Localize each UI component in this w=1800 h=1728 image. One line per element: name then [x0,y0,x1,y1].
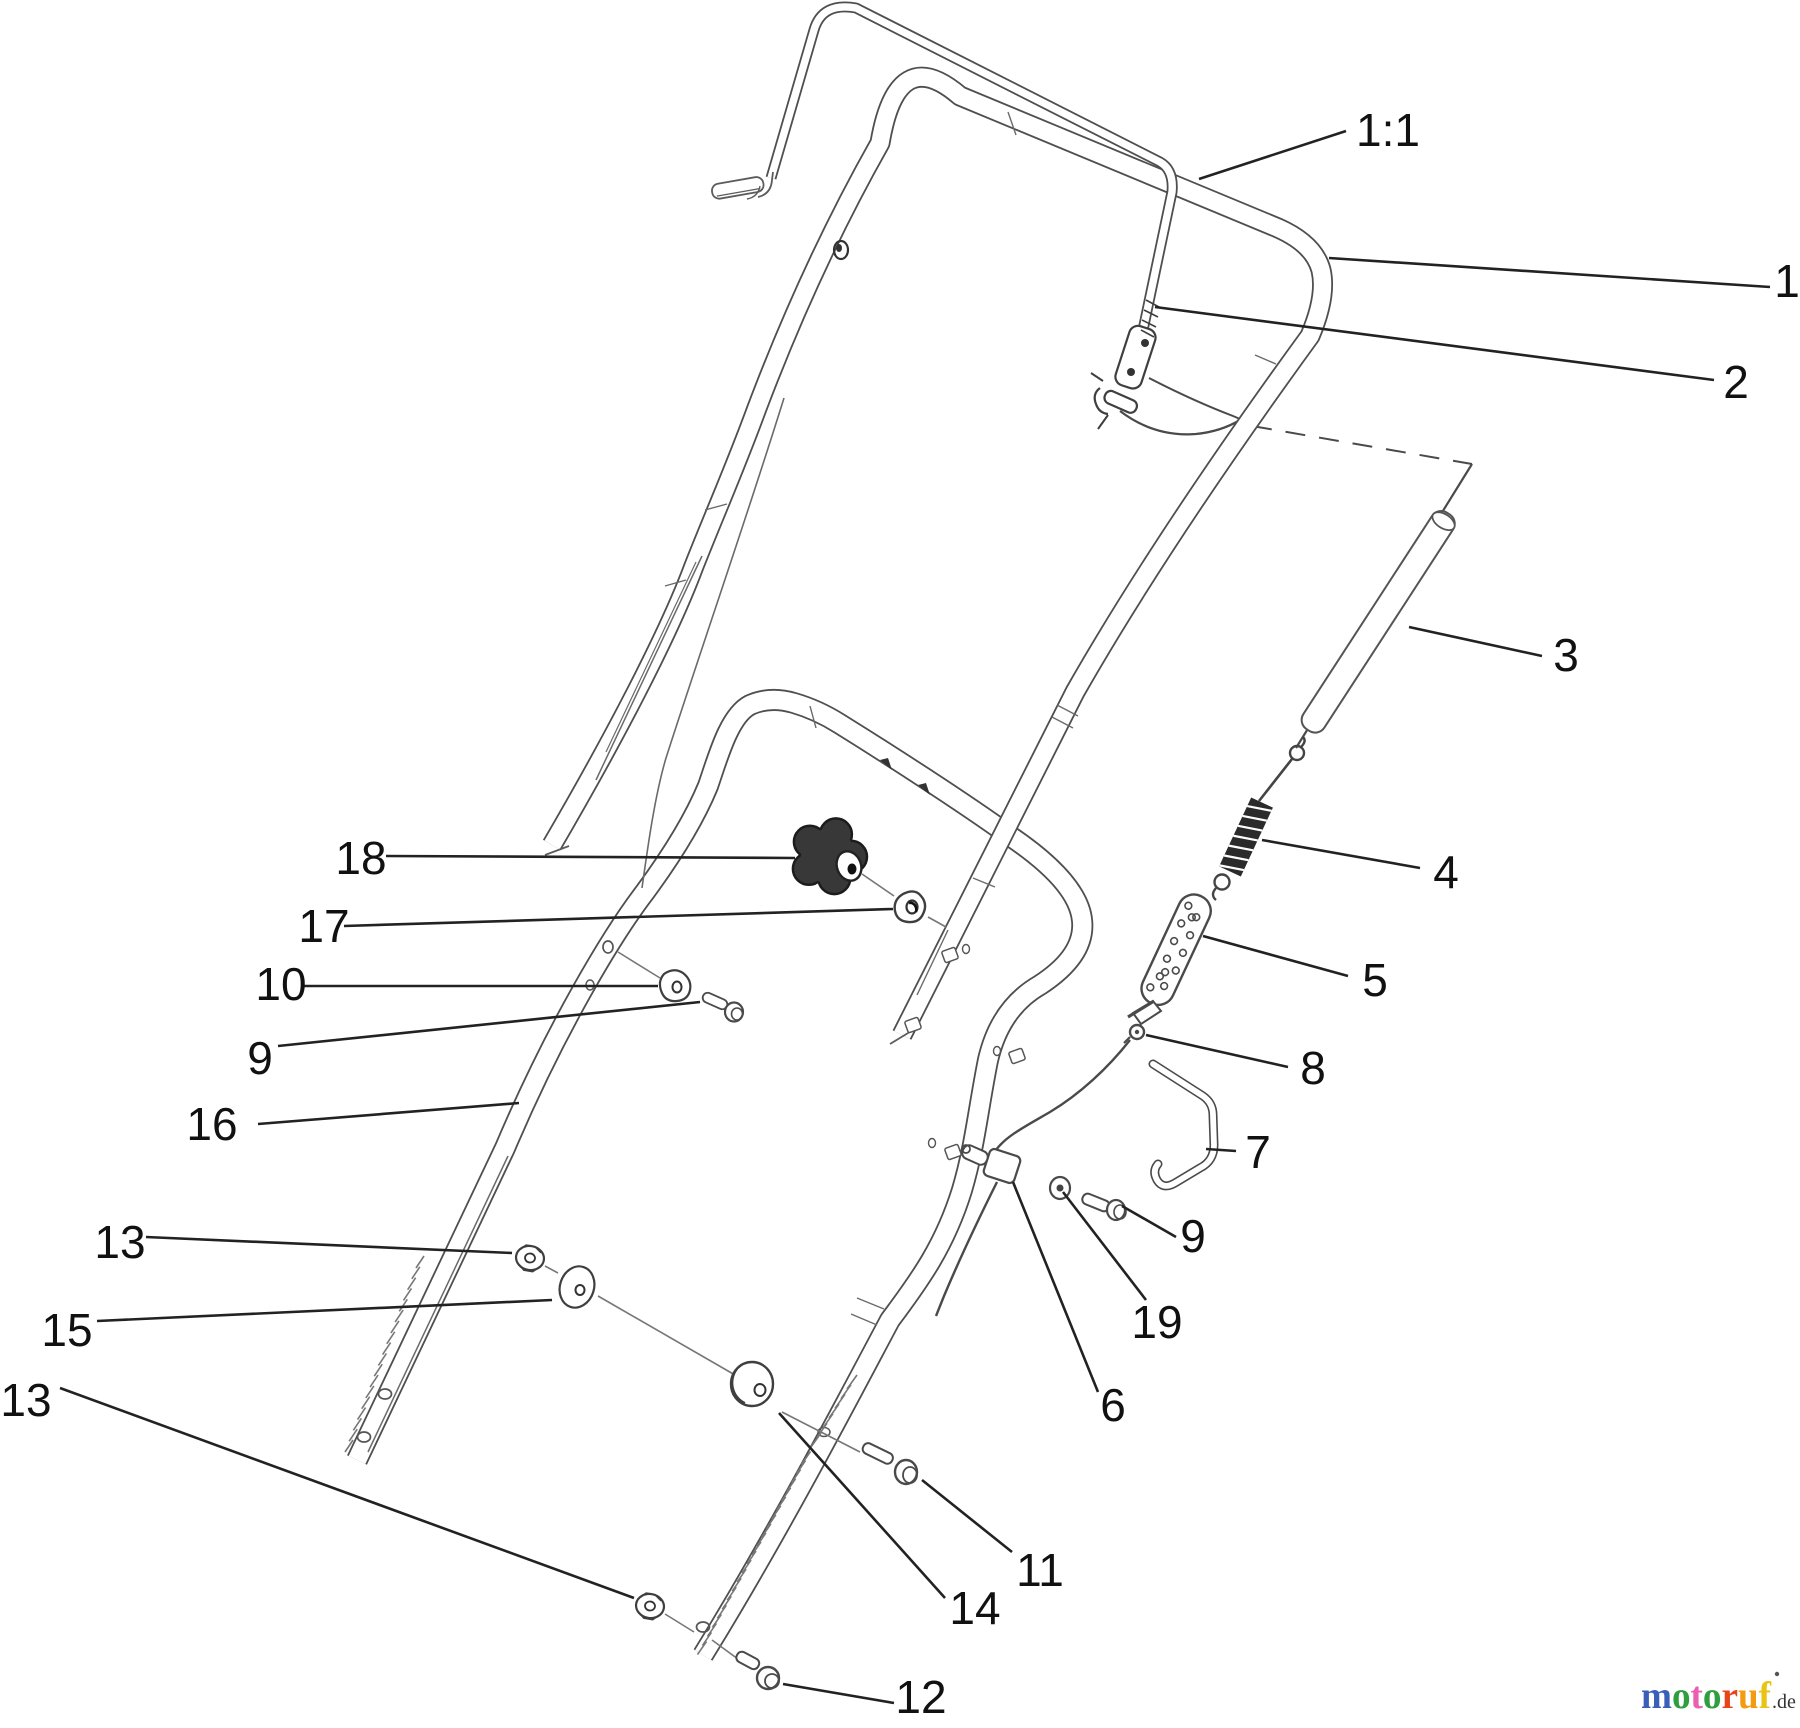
svg-text:4: 4 [1433,846,1459,898]
svg-text:11: 11 [1016,1544,1064,1596]
svg-text:5: 5 [1362,954,1388,1006]
svg-text:19: 19 [1131,1296,1182,1348]
svg-text:motoruf: motoruf [1641,1675,1772,1717]
svg-text:13: 13 [0,1374,51,1426]
svg-text:2: 2 [1723,356,1749,408]
svg-text:1:1: 1:1 [1356,104,1420,156]
svg-text:15: 15 [41,1304,92,1356]
svg-text:.de: .de [1772,1691,1796,1713]
svg-text:1: 1 [1774,255,1800,307]
svg-text:9: 9 [247,1032,273,1084]
svg-text:8: 8 [1300,1042,1326,1094]
svg-text:12: 12 [895,1671,946,1723]
svg-text:10: 10 [255,958,306,1010]
svg-text:14: 14 [949,1582,1000,1634]
svg-text:9: 9 [1180,1210,1206,1262]
svg-text:16: 16 [186,1098,237,1150]
svg-text:6: 6 [1100,1379,1126,1431]
svg-text:13: 13 [94,1216,145,1268]
svg-text:3: 3 [1553,629,1579,681]
svg-text:18: 18 [335,832,386,884]
svg-text:7: 7 [1245,1126,1271,1178]
svg-text:17: 17 [298,900,349,952]
